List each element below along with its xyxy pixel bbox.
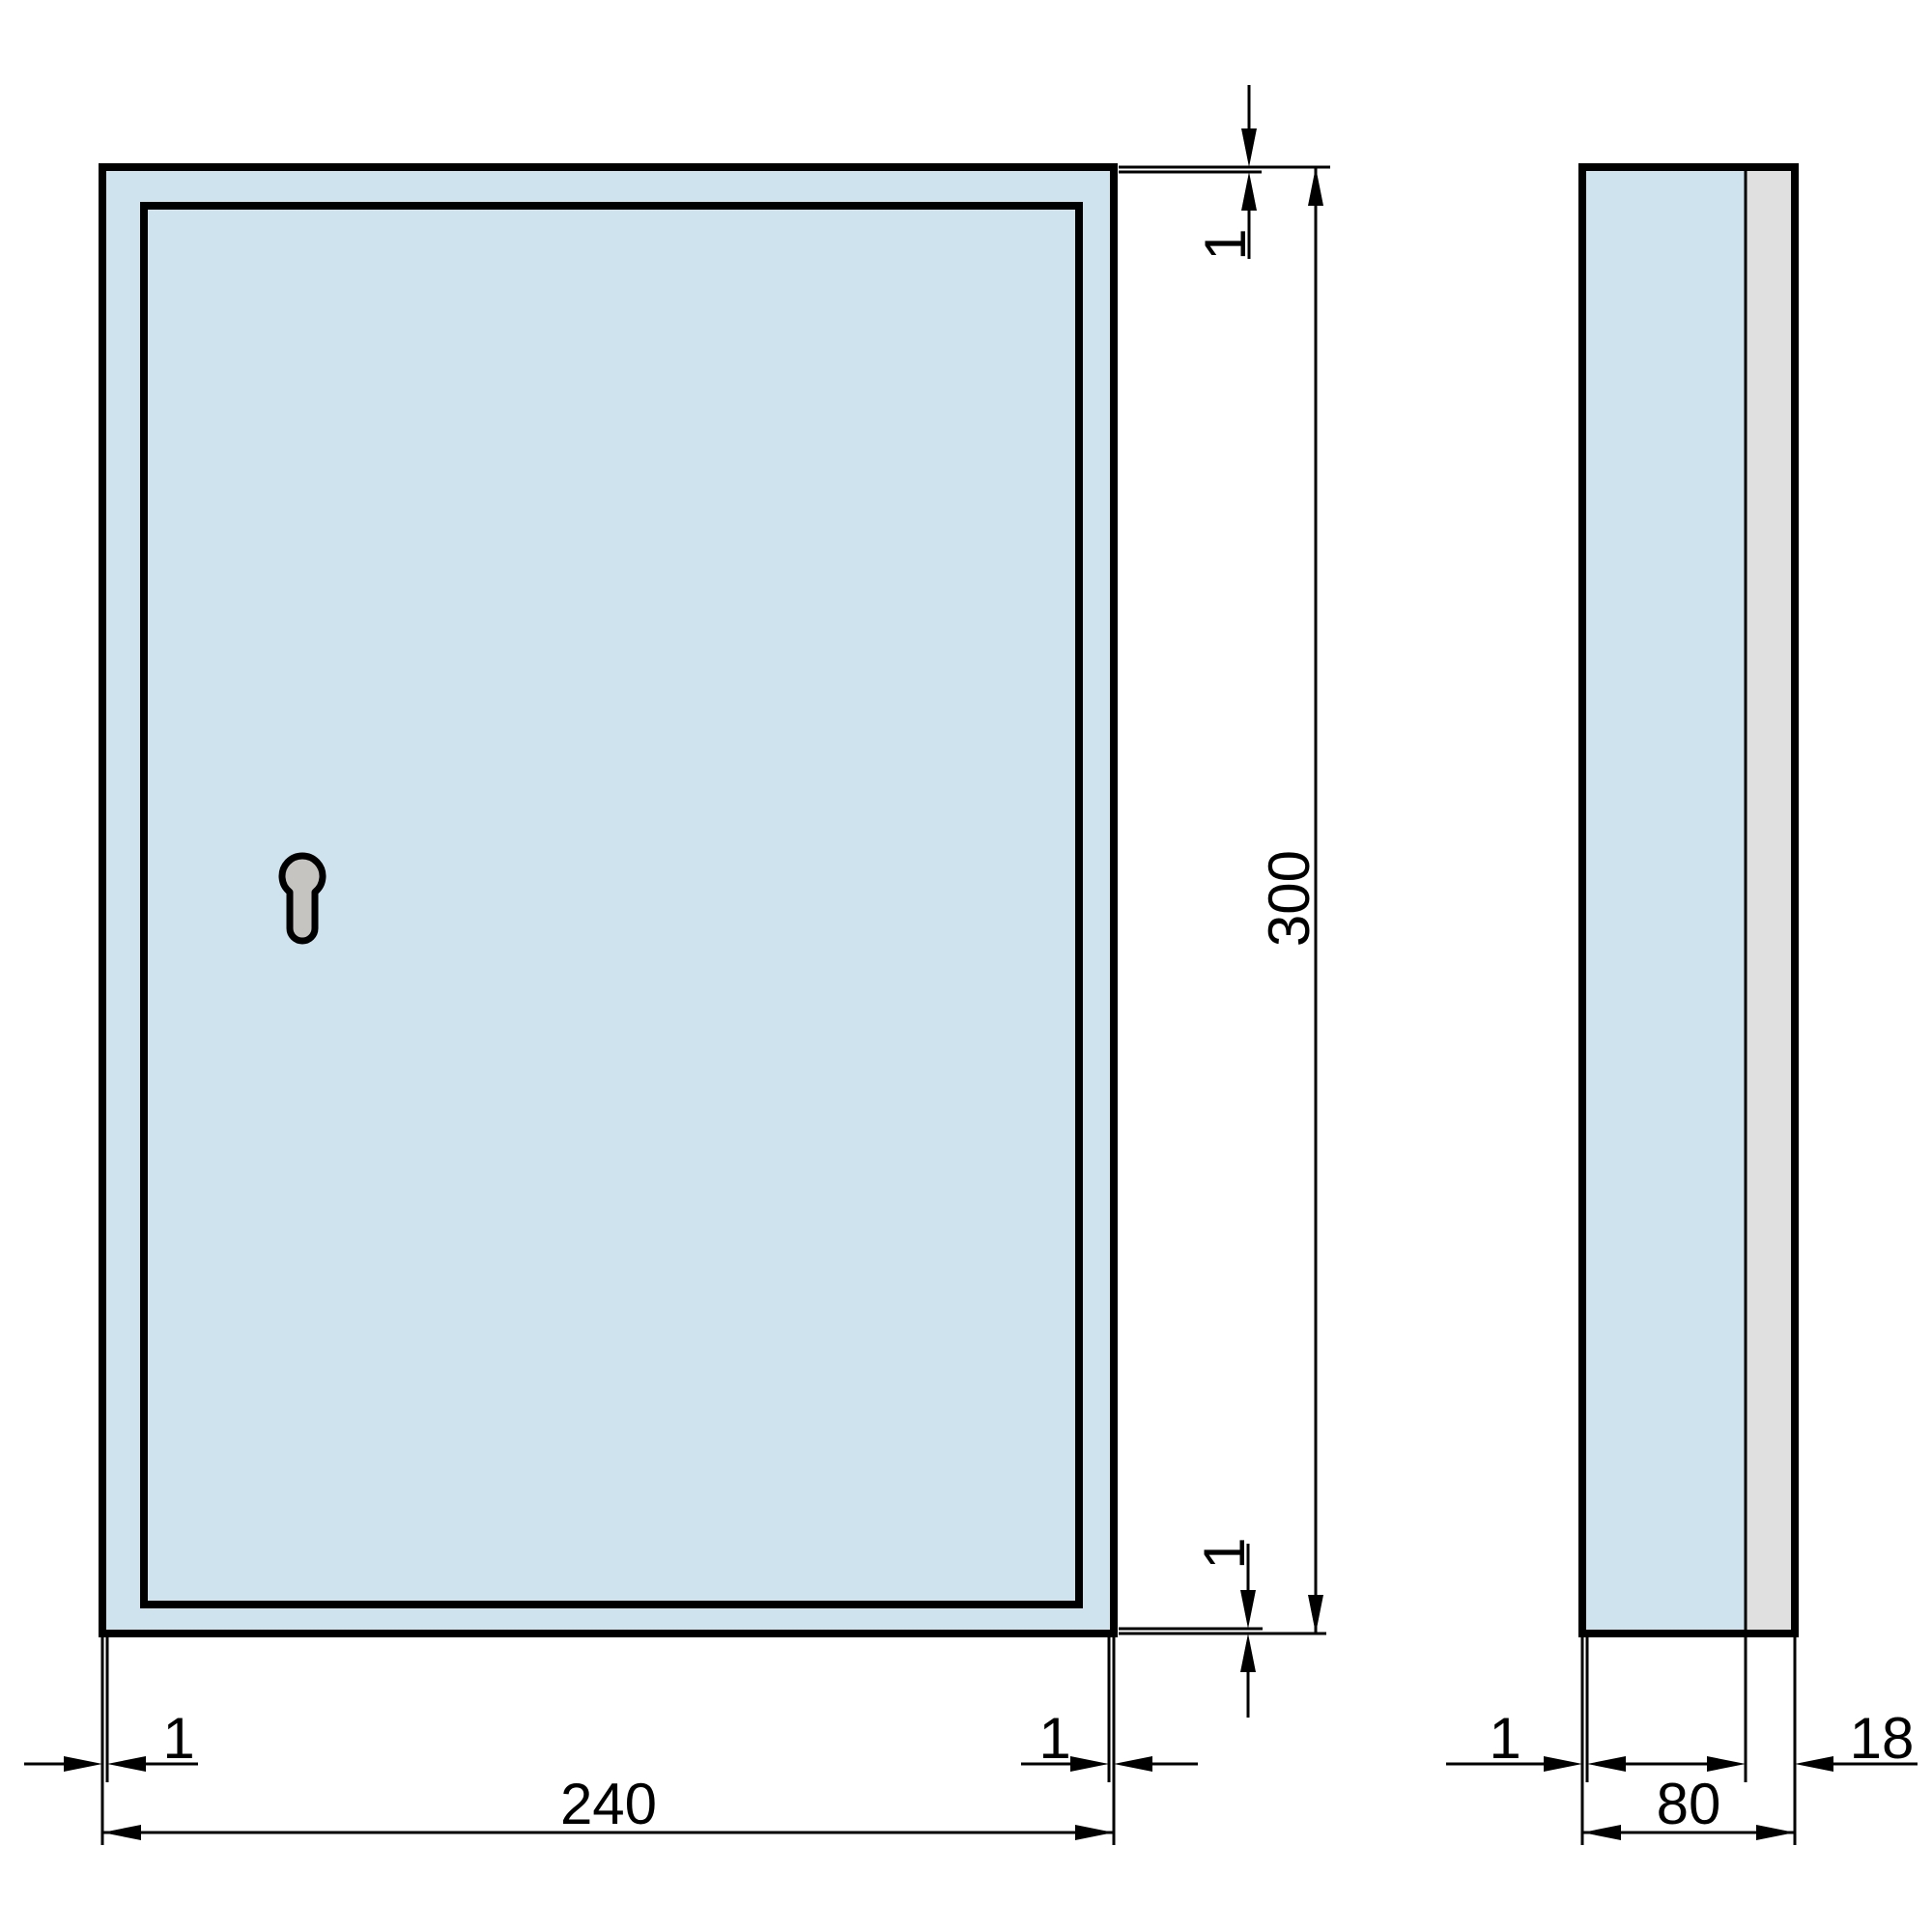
dim-front-gap-top: 1 <box>1119 85 1330 261</box>
dim-label-width: 240 <box>560 1772 657 1836</box>
arrowhead <box>1070 1756 1109 1772</box>
side-view-back-panel <box>1746 171 1791 1630</box>
side-view <box>1582 167 1795 1634</box>
arrowhead <box>1707 1756 1746 1772</box>
dim-side-depth: 80 <box>1582 1636 1795 1845</box>
arrowhead <box>1240 1590 1256 1629</box>
arrowhead <box>1241 128 1257 167</box>
dim-front-gap-left: 1 <box>24 1637 198 1782</box>
arrowhead <box>64 1756 102 1772</box>
dim-label-gap-left: 1 <box>162 1706 194 1771</box>
arrowhead <box>1756 1825 1795 1840</box>
arrowhead <box>1308 1595 1323 1634</box>
arrowhead <box>1308 167 1323 206</box>
dim-label-gap-top: 1 <box>1193 228 1258 260</box>
front-view-body-outline <box>102 167 1114 1634</box>
dim-label-front-sheet: 1 <box>1489 1706 1520 1771</box>
dim-side-front-sheet: 1 <box>1446 1636 1707 1782</box>
dim-label-gap-bottom: 1 <box>1192 1537 1257 1569</box>
dim-front-width: 240 <box>102 1637 1114 1845</box>
arrowhead <box>1114 1756 1152 1772</box>
arrowhead <box>1582 1825 1621 1840</box>
dim-label-depth: 80 <box>1657 1772 1721 1836</box>
dim-front-gap-right: 1 <box>1021 1637 1198 1782</box>
arrowhead <box>1241 172 1257 211</box>
front-view <box>102 167 1114 1634</box>
arrowhead <box>1240 1634 1256 1672</box>
keyhole-icon <box>282 856 323 941</box>
dim-label-back-panel: 18 <box>1850 1706 1915 1771</box>
arrowhead <box>1544 1756 1582 1772</box>
dim-label-gap-right: 1 <box>1038 1706 1070 1771</box>
dim-label-height: 300 <box>1257 850 1321 947</box>
dim-front-height: 300 <box>1257 167 1323 1634</box>
arrowhead <box>1795 1756 1833 1772</box>
dim-front-gap-bottom: 1 <box>1119 1537 1326 1718</box>
technical-drawing-canvas: 1 300 1 1 1 <box>0 0 1932 1932</box>
arrowhead <box>107 1756 146 1772</box>
arrowhead <box>1587 1756 1626 1772</box>
arrowhead <box>1075 1825 1114 1840</box>
dim-side-back-panel: 18 <box>1707 1636 1918 1782</box>
arrowhead <box>102 1825 141 1840</box>
